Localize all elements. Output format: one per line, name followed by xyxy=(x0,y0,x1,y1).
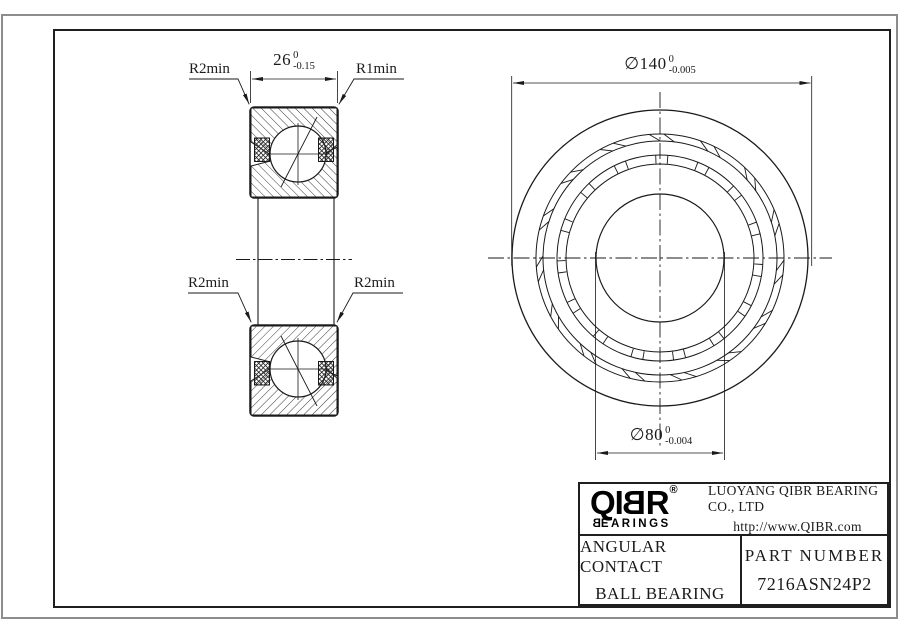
bore-tol-upper: 0 xyxy=(665,426,692,437)
radius-label-bottom-right: R2min xyxy=(354,276,395,292)
product-type-line2: BALL BEARING xyxy=(595,584,725,604)
logo-text: R xyxy=(646,488,669,518)
radius-label-bottom-left: R2min xyxy=(188,276,229,292)
company-info: LUOYANG QIBR BEARING CO., LTD http://www… xyxy=(708,483,887,535)
od-tol-upper: 0 xyxy=(669,55,696,66)
title-block: QIBR® BEARINGS LUOYANG QIBR BEARING CO.,… xyxy=(578,482,889,606)
bore-diameter-text: ∅ 80 0 -0.004 xyxy=(606,426,716,447)
width-value: 26 xyxy=(273,51,291,68)
outer-diameter-text: ∅ 140 0 -0.005 xyxy=(600,55,720,76)
radius-label-top-left: R2min xyxy=(189,62,230,78)
title-block-header-row: QIBR® BEARINGS LUOYANG QIBR BEARING CO.,… xyxy=(580,484,887,536)
company-name: LUOYANG QIBR BEARING CO., LTD xyxy=(708,483,887,515)
part-number-value: 7216ASN24P2 xyxy=(757,574,872,595)
bearing-cross-section-lower xyxy=(250,325,338,416)
bore-tol-lower: -0.004 xyxy=(665,437,692,448)
width-dimension-lines xyxy=(251,71,338,103)
radius-label-top-right: R1min xyxy=(356,62,397,78)
logo-mirrored-b: B xyxy=(623,488,646,518)
product-type-cell: ANGULAR CONTACT BALL BEARING xyxy=(580,536,742,604)
width-tolerance: 0 -0.15 xyxy=(293,51,315,72)
diameter-symbol: ∅ xyxy=(624,55,639,72)
part-number-cell: PART NUMBER 7216ASN24P2 xyxy=(742,536,887,604)
title-block-content-row: ANGULAR CONTACT BALL BEARING PART NUMBER… xyxy=(580,536,887,604)
brand-mirrored-b: B xyxy=(590,518,601,530)
bore-diameter-tolerance: 0 -0.004 xyxy=(665,426,692,447)
width-dimension-text: 26 0 -0.15 xyxy=(252,51,336,72)
outer-diameter-value: 140 xyxy=(640,55,667,72)
diameter-symbol: ∅ xyxy=(630,426,645,443)
registered-trademark-icon: ® xyxy=(670,486,677,496)
od-tol-lower: -0.005 xyxy=(669,66,696,77)
outer-diameter-tolerance: 0 -0.005 xyxy=(669,55,696,76)
front-view-centerlines xyxy=(488,92,832,446)
product-type-line1: ANGULAR CONTACT xyxy=(580,537,740,577)
width-tol-upper: 0 xyxy=(293,51,315,62)
company-logo: QIBR® BEARINGS xyxy=(580,488,708,531)
part-number-label: PART NUMBER xyxy=(745,546,885,566)
width-tol-lower: -0.15 xyxy=(293,62,315,73)
outer-diameter-dimension-lines xyxy=(512,76,812,266)
bearing-cross-section-upper xyxy=(250,107,338,198)
logo-wordmark: QIBR® xyxy=(590,488,677,518)
bore-diameter-value: 80 xyxy=(645,426,663,443)
bore-silhouette-lines xyxy=(258,198,334,325)
drawing-sheet: R2min R1min R2min R2min 26 0 -0.15 ∅ 140… xyxy=(0,0,900,636)
company-website: http://www.QIBR.com xyxy=(733,519,862,535)
logo-text: QI xyxy=(590,488,623,518)
